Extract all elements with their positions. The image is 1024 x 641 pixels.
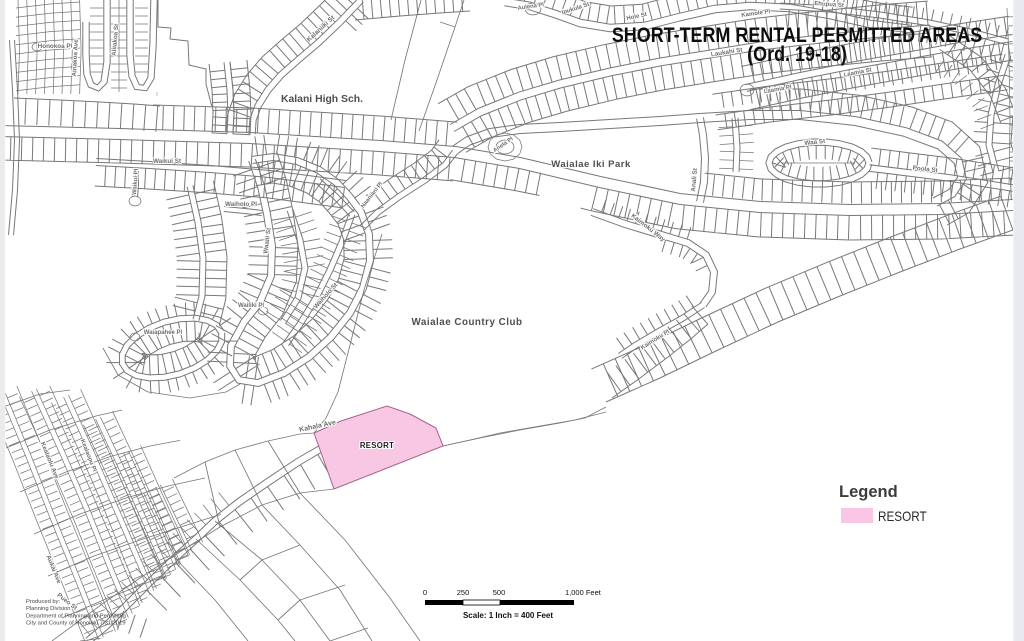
svg-text:(Ord. 19-18): (Ord. 19-18) xyxy=(747,43,847,67)
svg-text:Kalani High Sch.: Kalani High Sch. xyxy=(281,94,363,105)
svg-text:Scale: 1 Inch = 400 Feet: Scale: 1 Inch = 400 Feet xyxy=(463,611,553,620)
svg-text:RESORT: RESORT xyxy=(360,441,394,450)
svg-text:Produced by:: Produced by: xyxy=(26,599,61,605)
svg-text:Waikui St: Waikui St xyxy=(153,158,182,165)
svg-text:1,000 Feet: 1,000 Feet xyxy=(565,588,602,597)
svg-text:Waiholo Pl: Waiholo Pl xyxy=(225,201,257,208)
svg-text:Planning Division: Planning Division xyxy=(26,606,70,612)
svg-text:Waialae Country Club: Waialae Country Club xyxy=(412,317,523,328)
svg-text:Legend: Legend xyxy=(839,483,898,501)
svg-text:Honokoa Pl: Honokoa Pl xyxy=(38,43,73,50)
svg-text:City and County of Honolulu 7/: City and County of Honolulu 7/31/2019 xyxy=(26,621,126,627)
svg-text:250: 250 xyxy=(457,588,470,597)
svg-text:Wailiki Pl: Wailiki Pl xyxy=(238,303,264,309)
svg-text:Department of Planning and Per: Department of Planning and Permitting xyxy=(26,613,126,619)
svg-text:Waiapahee Pl: Waiapahee Pl xyxy=(144,330,183,336)
svg-text:Waialae Iki Park: Waialae Iki Park xyxy=(551,159,631,170)
svg-text:RESORT: RESORT xyxy=(878,509,927,524)
svg-text:500: 500 xyxy=(493,588,506,597)
svg-text:0: 0 xyxy=(423,588,427,597)
